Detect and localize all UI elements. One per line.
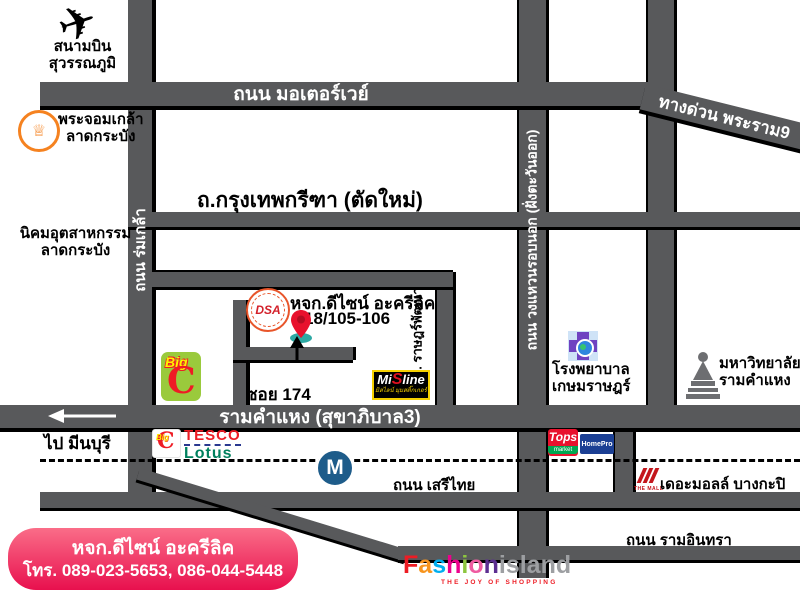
fashion-island-letter: o (468, 551, 483, 579)
dsa-logo-text: DSA (251, 293, 285, 327)
fashion-island-letter: h (446, 551, 461, 579)
direction-to-minburi: ไป มีนบุรี (44, 430, 111, 457)
hospital-label: โรงพยาบาล เกษมราษฎร์ (552, 361, 630, 396)
location-map: ถนน มอเตอร์เวย์ ทางด่วน พระราม9 รามคำแหง… (0, 0, 800, 600)
hospital-globe-icon (576, 339, 594, 357)
fashion-island-letter: n (484, 551, 499, 579)
metro-m-logo: M (316, 449, 354, 487)
dsa-logo: DSA (246, 288, 290, 332)
road-label-serithai: ถนน เสรีไทย (393, 473, 475, 497)
university-emblem-icon (686, 350, 720, 400)
misline-tagline: มิสไลน์ มุมสติ๊กเกอร์ (374, 388, 428, 394)
contact-name: หจก.ดีไซน์ อะครีลิค (8, 537, 298, 561)
the-mall-label: เดอะมอลล์ บางกะปิ (660, 472, 785, 496)
hospital-cross-icon (568, 331, 598, 361)
road-motorway: ถนน มอเตอร์เวย์ (40, 82, 652, 106)
the-mall-logo: THE MALL (634, 468, 663, 492)
kmitl-label: พระจอมเกล้า ลาดกระบัง (58, 111, 144, 146)
kmitl-seal-icon: ♕ (18, 110, 60, 152)
tesco-lotus-logo: TESCO Lotus (184, 428, 241, 463)
bigc-small-logo: C Big (152, 429, 181, 458)
the-mall-m-icon (640, 468, 658, 487)
road-label-krungthep-kreetha: ถ.กรุงเทพกรีฑา (ตัดใหม่) (197, 184, 423, 217)
dashed-line (40, 459, 800, 462)
fashion-island-letter: a (418, 551, 432, 579)
bigc-logo: Big C (161, 352, 201, 401)
airport-label: สนามบิน สุวรรณภูมิ (25, 38, 140, 73)
road-block-top (152, 272, 453, 287)
fashion-island-word: Fashion (403, 551, 499, 579)
fashion-island-letter: F (403, 551, 418, 579)
industrial-estate-label: นิคมอุตสาหกรรม ลาดกระบัง (8, 225, 143, 260)
shop-address: 18/105-106 (304, 309, 390, 329)
university-label: มหาวิทยาลัย รามคำแหง (719, 355, 800, 390)
road-label-motorway: ถนน มอเตอร์เวย์ (233, 79, 368, 109)
road-label-raminthra: ถนน รามอินทรา (626, 528, 732, 552)
road-label-soi174: ซอย 174 (246, 381, 311, 408)
misline-logo: MiSline มิสไลน์ มุมสติ๊กเกอร์ (372, 370, 430, 400)
road-label-expressway: ทางด่วน พระราม9 (656, 88, 793, 147)
road-ramkhamhaeng: รามคำแหง (สุขาภิบาล3) (0, 405, 800, 428)
west-arrow-icon (48, 409, 118, 423)
fashion-island-tagline: THE JOY OF SHOPPING (441, 580, 571, 587)
contact-phone: โทร. 089-023-5653, 086-044-5448 (8, 560, 298, 581)
up-arrow-icon (289, 336, 305, 363)
homepro-logo: HomePro (580, 434, 614, 454)
contact-box: หจก.ดีไซน์ อะครีลิค โทร. 089-023-5653, 0… (8, 528, 298, 590)
tops-market-logo: Tops market (548, 429, 578, 456)
fashion-island-letter: s (432, 551, 446, 579)
fashion-island-logo: Fashionisland THE JOY OF SHOPPING (403, 553, 571, 587)
